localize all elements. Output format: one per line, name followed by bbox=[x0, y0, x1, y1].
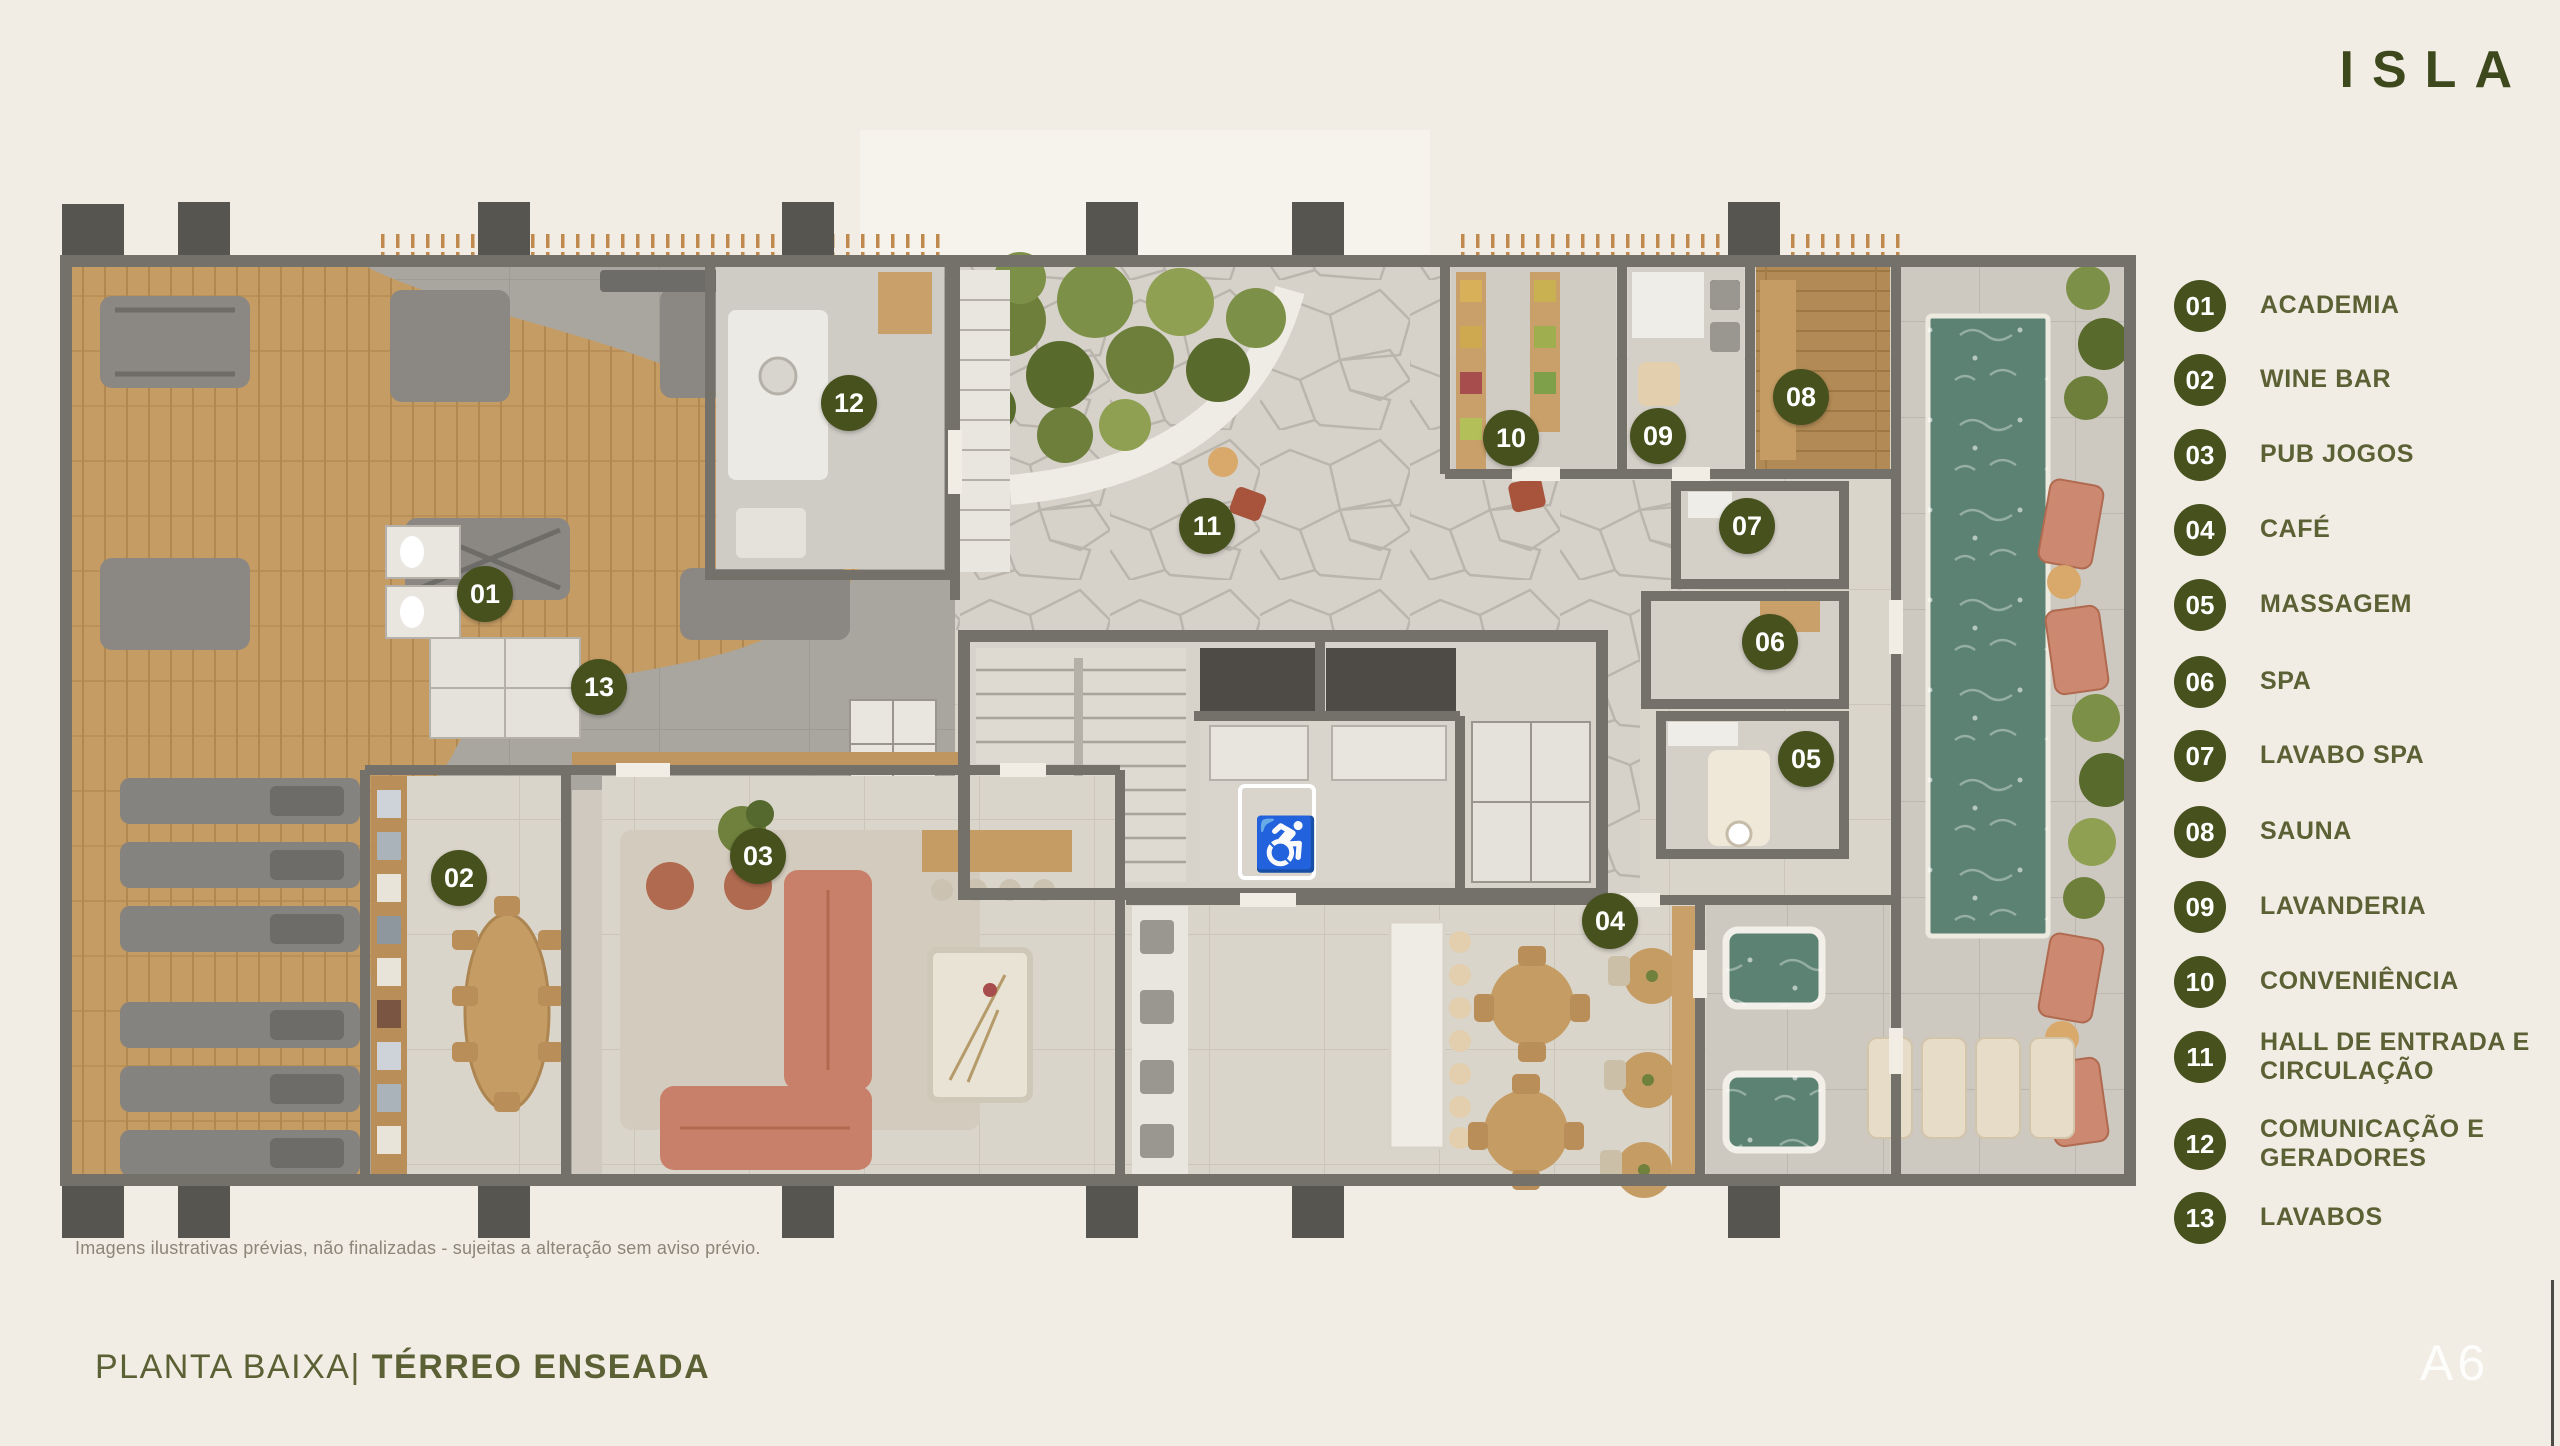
page-title-emphasis: TÉRREO ENSEADA bbox=[372, 1348, 710, 1386]
legend-number-badge: 06 bbox=[2174, 656, 2226, 708]
legend-number-badge: 11 bbox=[2174, 1031, 2226, 1083]
plan-marker: 05 bbox=[1778, 731, 1834, 787]
legend-label: CAFÉ bbox=[2260, 515, 2330, 545]
hot-tubs bbox=[1706, 900, 1890, 1180]
legend-item-academia: 01 ACADEMIA bbox=[2174, 278, 2400, 334]
legend-number-badge: 03 bbox=[2174, 429, 2226, 481]
legend-label: SAUNA bbox=[2260, 817, 2352, 847]
plan-marker: 10 bbox=[1483, 410, 1539, 466]
legend-label: LAVANDERIA bbox=[2260, 892, 2426, 922]
legend-number-badge: 02 bbox=[2174, 354, 2226, 406]
legend-item-spa: 06 SPA bbox=[2174, 654, 2311, 710]
legend-number-badge: 13 bbox=[2174, 1192, 2226, 1244]
legend-label: SPA bbox=[2260, 667, 2311, 697]
legend-number-badge: 07 bbox=[2174, 730, 2226, 782]
legend-number-badge: 01 bbox=[2174, 280, 2226, 332]
pool-area bbox=[1868, 261, 2133, 1180]
legend-item-cafe: 04 CAFÉ bbox=[2174, 502, 2330, 558]
plan-marker: 12 bbox=[821, 375, 877, 431]
floor-plan: ♿ bbox=[60, 130, 2140, 1240]
legend-number-badge: 08 bbox=[2174, 806, 2226, 858]
legend-number-badge: 12 bbox=[2174, 1118, 2226, 1170]
legend-number-badge: 05 bbox=[2174, 579, 2226, 631]
legend-number-badge: 10 bbox=[2174, 956, 2226, 1008]
plan-marker: 11 bbox=[1179, 498, 1235, 554]
legend-label: PUB JOGOS bbox=[2260, 440, 2414, 470]
legend-item-pub-jogos: 03 PUB JOGOS bbox=[2174, 427, 2414, 483]
legend-label: MASSAGEM bbox=[2260, 590, 2412, 620]
plan-marker: 07 bbox=[1719, 498, 1775, 554]
page-title-prefix: PLANTA BAIXA| bbox=[95, 1348, 361, 1386]
sheet-code: A6 bbox=[2420, 1334, 2489, 1392]
legend-number-badge: 04 bbox=[2174, 504, 2226, 556]
isla-logo: ISLA bbox=[2030, 40, 2530, 100]
floor-plan-drawing: ♿ bbox=[60, 130, 2140, 1240]
legend-item-lavabos: 13 LAVABOS bbox=[2174, 1190, 2383, 1246]
plan-marker: 06 bbox=[1742, 614, 1798, 670]
plan-marker: 01 bbox=[457, 566, 513, 622]
legend-item-wine-bar: 02 WINE BAR bbox=[2174, 352, 2391, 408]
pool bbox=[1928, 316, 2048, 936]
plan-marker: 03 bbox=[730, 828, 786, 884]
legend-label: WINE BAR bbox=[2260, 365, 2391, 395]
plan-marker: 13 bbox=[571, 659, 627, 715]
legend-item-sauna: 08 SAUNA bbox=[2174, 804, 2352, 860]
plan-marker: 04 bbox=[1582, 893, 1638, 949]
page-edge-line bbox=[2551, 1280, 2554, 1446]
legend-label: ACADEMIA bbox=[2260, 291, 2400, 321]
legend-label: HALL DE ENTRADA E CIRCULAÇÃO bbox=[2260, 1028, 2560, 1087]
page-title: PLANTA BAIXA| TÉRREO ENSEADA bbox=[95, 1348, 710, 1387]
room-pub-jogos bbox=[572, 752, 1120, 1178]
legend-item-lavabo-spa: 07 LAVABO SPA bbox=[2174, 728, 2424, 784]
legend-label: LAVABO SPA bbox=[2260, 741, 2424, 771]
floorplan-page: ISLA bbox=[0, 0, 2560, 1446]
plan-marker: 08 bbox=[1773, 369, 1829, 425]
legend-item-lavanderia: 09 LAVANDERIA bbox=[2174, 879, 2426, 935]
legend-item-massagem: 05 MASSAGEM bbox=[2174, 577, 2412, 633]
legend-label: LAVABOS bbox=[2260, 1203, 2383, 1233]
legend-label: COMUNICAÇÃO E GERADORES bbox=[2260, 1115, 2560, 1174]
legend-item-comunicacao: 12 COMUNICAÇÃO E GERADORES bbox=[2174, 1116, 2560, 1172]
legend-item-conveniencia: 10 CONVENIÊNCIA bbox=[2174, 954, 2459, 1010]
wheelchair-icon: ♿ bbox=[1253, 814, 1318, 874]
legend-label: CONVENIÊNCIA bbox=[2260, 967, 2459, 997]
disclaimer-text: Imagens ilustrativas prévias, não finali… bbox=[75, 1238, 761, 1259]
legend-item-hall-entrada: 11 HALL DE ENTRADA E CIRCULAÇÃO bbox=[2174, 1029, 2560, 1085]
plan-marker: 02 bbox=[431, 850, 487, 906]
legend-number-badge: 09 bbox=[2174, 881, 2226, 933]
plan-marker: 09 bbox=[1630, 408, 1686, 464]
